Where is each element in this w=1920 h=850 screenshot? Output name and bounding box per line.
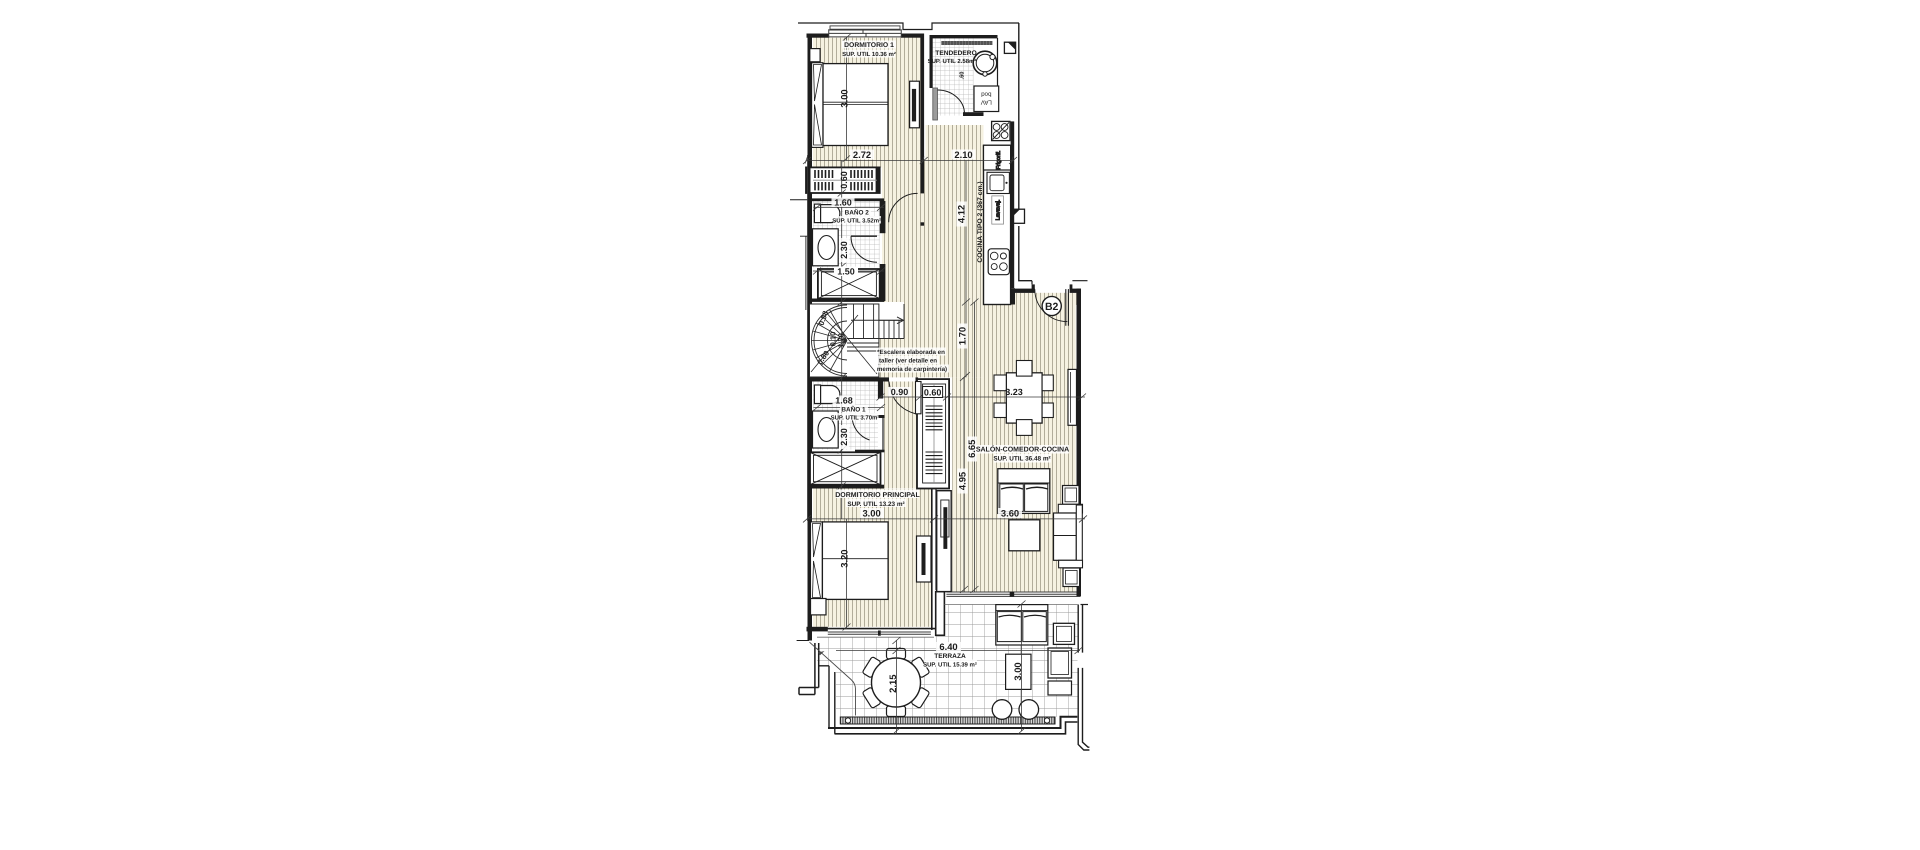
svg-text:1.68: 1.68: [835, 396, 853, 406]
svg-text:2.15: 2.15: [887, 675, 898, 693]
svg-text:2.30: 2.30: [839, 428, 849, 446]
svg-text:*Escalera elaborada en: *Escalera elaborada en: [877, 349, 945, 356]
svg-text:taller (ver detalle en: taller (ver detalle en: [879, 358, 937, 365]
svg-text:SUP. UTIL 36.48 m²: SUP. UTIL 36.48 m²: [993, 456, 1050, 463]
svg-text:1.60: 1.60: [834, 198, 852, 208]
svg-text:3.00: 3.00: [1012, 662, 1023, 680]
svg-text:TERRAZA: TERRAZA: [934, 653, 966, 660]
svg-text:3.23: 3.23: [1005, 387, 1023, 397]
svg-text:SALÓN-COMEDOR-COCINA: SALÓN-COMEDOR-COCINA: [976, 445, 1069, 454]
svg-text:memoria de carpintería): memoria de carpintería): [877, 366, 947, 373]
svg-text:2.72: 2.72: [853, 149, 871, 160]
svg-text:bod: bod: [981, 91, 992, 98]
svg-text:4.95: 4.95: [957, 472, 968, 490]
svg-text:SUP. UTIL 3.70m²: SUP. UTIL 3.70m²: [831, 415, 880, 422]
svg-text:BAÑO 2: BAÑO 2: [845, 209, 870, 217]
svg-text:Lavavaj.: Lavavaj.: [995, 199, 1002, 220]
svg-text:DORMITORIO 1: DORMITORIO 1: [844, 42, 894, 49]
svg-text:6.40: 6.40: [939, 641, 957, 652]
svg-text:Frigorif.: Frigorif.: [995, 150, 1002, 169]
svg-text:0.60: 0.60: [924, 388, 942, 398]
svg-text:B2: B2: [1045, 301, 1059, 313]
svg-text:SUP. UTIL 3.52m²: SUP. UTIL 3.52m²: [832, 218, 881, 225]
svg-text:DORMITORIO PRINCIPAL: DORMITORIO PRINCIPAL: [835, 492, 920, 499]
svg-text:1.70: 1.70: [957, 327, 968, 345]
svg-text:BAÑO 1: BAÑO 1: [841, 406, 866, 414]
svg-text:.60: .60: [958, 71, 965, 79]
svg-text:TENDEDERO: TENDEDERO: [935, 50, 976, 57]
svg-text:2.10: 2.10: [954, 149, 972, 160]
svg-text:2.30: 2.30: [839, 241, 849, 259]
svg-text:3.00: 3.00: [862, 508, 880, 519]
svg-text:1.70: 1.70: [836, 333, 845, 348]
svg-text:SUP. UTIL 2.58m²: SUP. UTIL 2.58m²: [928, 58, 977, 65]
svg-text:0.90: 0.90: [891, 387, 909, 397]
svg-text:3.60: 3.60: [1001, 508, 1019, 519]
svg-text:3.00: 3.00: [839, 89, 850, 107]
svg-text:COCINA TIPO 2 (367 cm.): COCINA TIPO 2 (367 cm.): [977, 181, 984, 262]
svg-text:LAV: LAV: [980, 99, 992, 106]
svg-text:1.50: 1.50: [837, 267, 855, 277]
svg-text:SUP. UTIL 15.39 m²: SUP. UTIL 15.39 m²: [923, 662, 977, 669]
svg-text:4.12: 4.12: [956, 205, 967, 223]
svg-text:0.60: 0.60: [839, 171, 849, 189]
svg-text:3.20: 3.20: [838, 549, 849, 567]
svg-text:SUP. UTIL 10.36 m²: SUP. UTIL 10.36 m²: [842, 51, 896, 58]
